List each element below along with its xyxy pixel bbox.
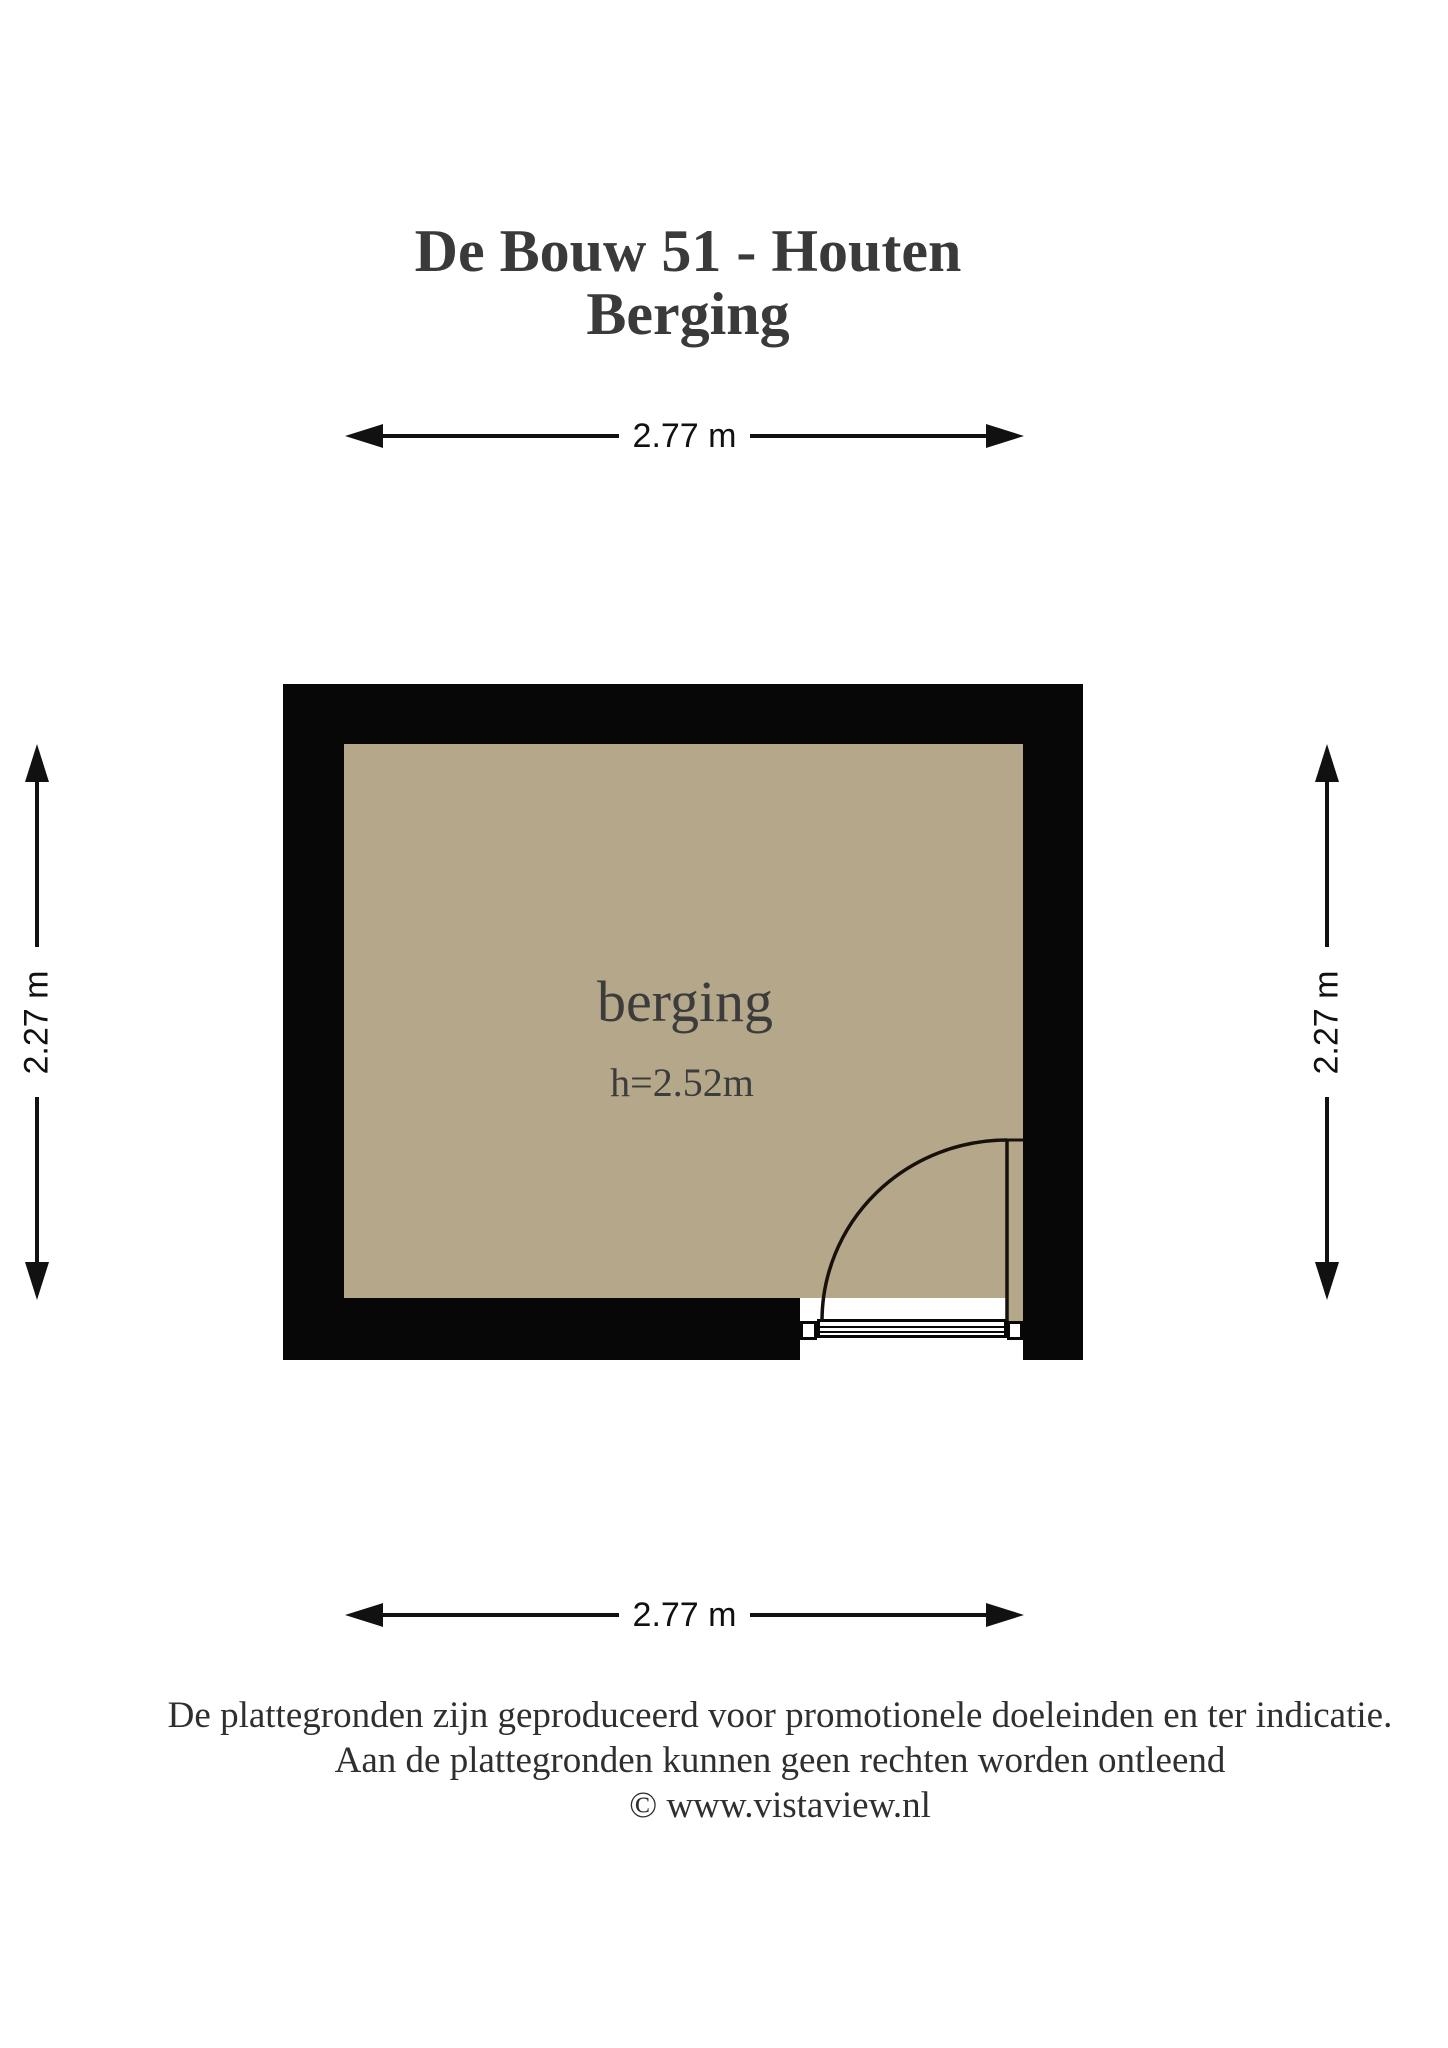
dimension-line [1325,1097,1329,1262]
dimension-arrow-right: 2.27 m [1303,744,1351,1300]
door-swing-icon [780,1120,1040,1340]
arrowhead-down-icon [25,1262,49,1300]
dimension-line [750,1613,986,1617]
dimension-label-bottom: 2.77 m [619,1596,751,1635]
arrowhead-up-icon [1315,744,1339,782]
footer-line-2: Aan de plattegronden kunnen geen rechten… [168,1738,1393,1783]
page-title: De Bouw 51 - Houten Berging [415,220,962,346]
arrowhead-up-icon [25,744,49,782]
dimension-line [383,1613,619,1617]
dimension-label-top: 2.77 m [619,417,751,456]
room-name-label: berging [597,973,773,1031]
arrowhead-left-icon [345,1603,383,1627]
dimension-arrow-left: 2.27 m [13,744,61,1300]
floorplan-page: De Bouw 51 - Houten Berging 2.77 m 2.27 … [0,0,1448,2048]
footer-disclaimer: De plattegronden zijn geproduceerd voor … [168,1693,1393,1828]
ceiling-height-label: h=2.52m [610,1063,754,1103]
dimension-arrow-bottom: 2.77 m [345,1591,1024,1639]
dimension-arrow-top: 2.77 m [345,412,1024,460]
page-title-address: De Bouw 51 - Houten [415,220,962,283]
arrowhead-left-icon [345,424,383,448]
dimension-label-right: 2.27 m [1308,970,1347,1074]
dimension-label-left-box: 2.27 m [13,947,61,1097]
dimension-label-left: 2.27 m [18,970,57,1074]
page-title-room: Berging [415,283,962,346]
dimension-label-right-box: 2.27 m [1303,947,1351,1097]
footer-copyright: © www.vistaview.nl [168,1783,1393,1828]
dimension-line [1325,782,1329,947]
dimension-line [383,434,619,438]
dimension-line [35,782,39,947]
dimension-line [35,1097,39,1262]
footer-line-1: De plattegronden zijn geproduceerd voor … [168,1693,1393,1738]
arrowhead-down-icon [1315,1262,1339,1300]
door-swing-arc [822,1140,1007,1321]
dimension-line [750,434,986,438]
arrowhead-right-icon [986,1603,1024,1627]
arrowhead-right-icon [986,424,1024,448]
